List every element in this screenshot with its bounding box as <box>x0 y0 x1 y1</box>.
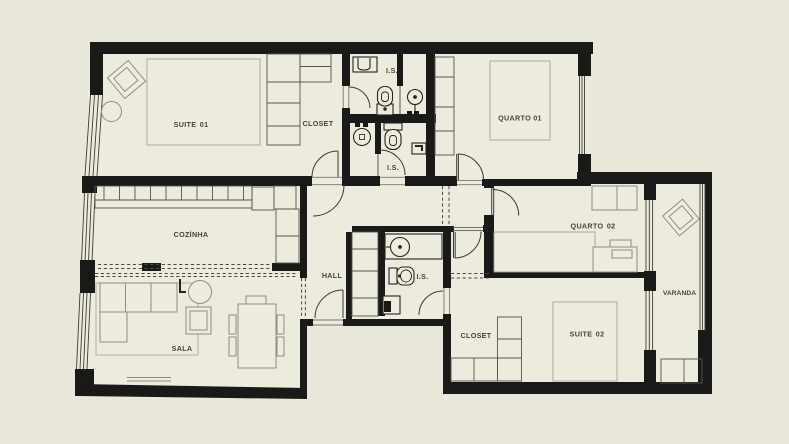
svg-text:QUARTO 02: QUARTO 02 <box>571 222 616 231</box>
svg-text:SUITE 02: SUITE 02 <box>570 330 605 339</box>
svg-text:VARANDA: VARANDA <box>663 290 696 297</box>
svg-text:SUITE 01: SUITE 01 <box>174 120 209 129</box>
svg-text:CLOSET: CLOSET <box>303 119 334 128</box>
svg-text:SALA: SALA <box>172 344 193 353</box>
svg-text:I.S.: I.S. <box>417 272 429 281</box>
svg-text:CLOSET: CLOSET <box>461 331 492 340</box>
svg-text:I.S.: I.S. <box>387 163 399 172</box>
svg-text:COZİNHA: COZİNHA <box>174 230 209 239</box>
svg-text:I.S.: I.S. <box>386 66 398 75</box>
svg-text:QUARTO 01: QUARTO 01 <box>498 114 542 123</box>
svg-text:HALL: HALL <box>322 271 343 280</box>
